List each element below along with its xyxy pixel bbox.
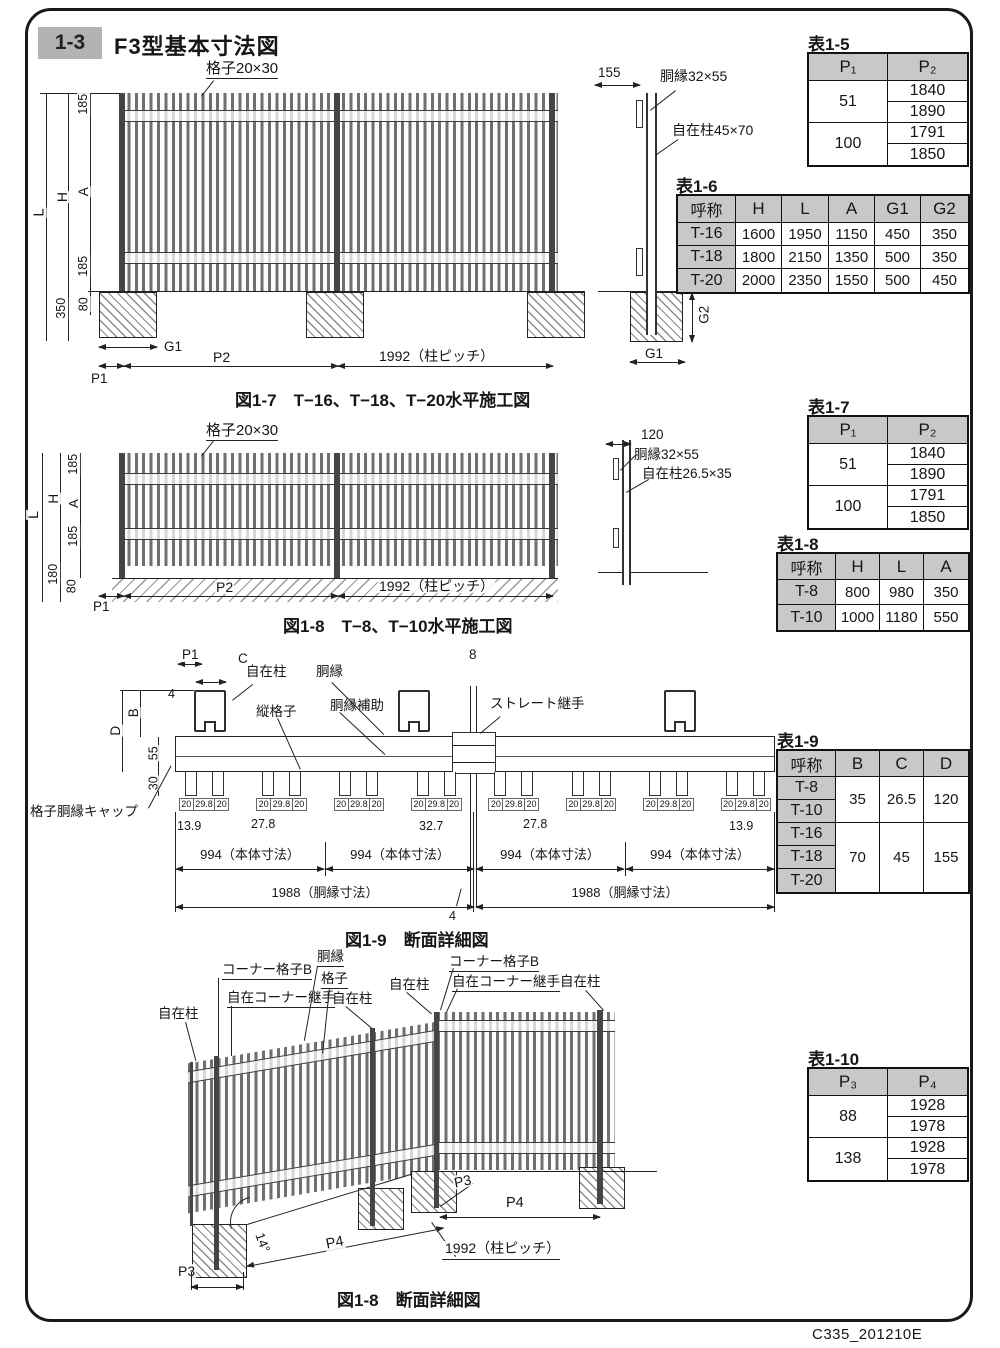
fig18-side-dim-120: 120 bbox=[640, 428, 665, 442]
table-1-7-cell: 1850 bbox=[888, 507, 967, 528]
fig18-dim-180: 180 bbox=[47, 563, 60, 586]
fig19-post-channel-right bbox=[664, 690, 696, 732]
fig17-side-dim-line-G1 bbox=[630, 362, 685, 363]
table-1-8-header: L bbox=[880, 554, 924, 580]
fig18-dim-A: A bbox=[67, 498, 80, 509]
fig17-dim-185-bottom: 185 bbox=[77, 255, 90, 278]
fig19-rail-dim-line bbox=[476, 907, 774, 908]
fig19-rail-dim-text: 1988（胴縁寸法） bbox=[272, 885, 379, 900]
fig18b-pitch-underline bbox=[442, 1259, 560, 1260]
fig19-picket bbox=[753, 772, 765, 796]
fig19-body-dim: 994（本体寸法） bbox=[175, 844, 325, 870]
fig18b-dim-P3-right: P3 bbox=[452, 1172, 474, 1190]
table-1-8-header: A bbox=[924, 554, 968, 580]
table-1-8-cell: 1180 bbox=[880, 605, 924, 630]
table-1-10-cell: 1978 bbox=[888, 1117, 967, 1138]
fig19-dim-B: B bbox=[127, 707, 141, 718]
table-1-5-header-p2: P₂ bbox=[888, 54, 967, 81]
fig19-body-dim: 994（本体寸法） bbox=[625, 844, 775, 870]
table-1-9-header: B bbox=[836, 751, 880, 777]
fig19-gap-dim-3: 32.7 bbox=[418, 820, 444, 833]
fig18-side-dim-line-120 bbox=[606, 444, 631, 445]
fig19-picket-dim: 29.8 bbox=[270, 799, 292, 810]
fig17-caption: 図1-7 T−16、T−18、T−20水平施工図 bbox=[235, 386, 530, 411]
fig19-picket bbox=[572, 772, 584, 796]
fig18b-level-ground-line bbox=[457, 1171, 657, 1172]
table-1-9-cell: 120 bbox=[924, 777, 968, 823]
fig19-picket-dim: 20 bbox=[644, 799, 657, 810]
fig19-dim-8: 8 bbox=[468, 648, 478, 662]
fig18b-post-2 bbox=[370, 1028, 375, 1226]
fig19-joint-hardware-line1 bbox=[452, 745, 496, 746]
fig19-grid-label: 縦格子 bbox=[256, 704, 297, 720]
table-1-6-cell: 2000 bbox=[736, 269, 782, 292]
fig17-dim-line-G1 bbox=[99, 347, 157, 348]
fig19-picket-pair bbox=[262, 772, 301, 796]
fig19-picket-group: 20 29.8 20 bbox=[721, 772, 771, 811]
fig17-dim-line-A bbox=[90, 93, 91, 315]
fig17-dim-pitch: 1992（柱ピッチ） bbox=[378, 349, 495, 363]
table-1-6-header: 呼称 bbox=[678, 196, 736, 223]
table-1-9-cell: 155 bbox=[924, 823, 968, 892]
fig18b-level-rail-top bbox=[437, 1020, 615, 1032]
table-1-6-cell: 2350 bbox=[782, 269, 829, 292]
fig19-picket-dim: 29.8 bbox=[657, 799, 679, 810]
fig17-side-post bbox=[646, 93, 657, 335]
table-1-5-cell: 1791 bbox=[888, 123, 967, 144]
table-1-9-cell: 45 bbox=[880, 823, 924, 892]
fig17-side-rail-label: 胴縁32×55 bbox=[660, 68, 727, 84]
table-1-6-cell: T-18 bbox=[678, 246, 736, 269]
fig18b-post-label-1: 自在柱 bbox=[158, 1006, 199, 1022]
fig17-footing-right bbox=[527, 292, 585, 338]
table-1-6-cell: 1600 bbox=[736, 223, 782, 246]
fig18b-corner-joint-leader-1 bbox=[231, 1006, 232, 1056]
fig17-dim-80: 80 bbox=[78, 296, 91, 312]
fig18-post-right bbox=[549, 453, 555, 598]
fig18b-post-label-4: 自在柱 bbox=[560, 974, 601, 990]
fig18b-dim-line-P4-right bbox=[440, 1217, 600, 1218]
fig19-picket-pair bbox=[417, 772, 456, 796]
fig19-picket bbox=[649, 772, 661, 796]
fig19-body-dim-line bbox=[626, 869, 774, 870]
table-1-10-cell: 138 bbox=[809, 1138, 888, 1180]
fig19-picket-dims: 20 29.8 20 bbox=[566, 798, 617, 811]
fig19-picket-dim: 20 bbox=[180, 799, 193, 810]
fig19-picket-dim: 20 bbox=[412, 799, 425, 810]
table-1-6-header: G1 bbox=[875, 196, 921, 223]
table-1-8-cell: 550 bbox=[924, 605, 968, 630]
fig19-gap-dim-5: 13.9 bbox=[728, 820, 754, 833]
table-1-6-header: G2 bbox=[921, 196, 968, 223]
fig19-picket-dims: 20 29.8 20 bbox=[411, 798, 462, 811]
page-title: F3型基本寸法図 bbox=[114, 29, 280, 61]
fig19-body-dim-line bbox=[326, 869, 474, 870]
fig18b-corner-grid-label-2: コーナー格子B bbox=[449, 954, 539, 972]
fig19-picket-pair bbox=[572, 772, 611, 796]
table-1-6-cell: 1350 bbox=[829, 246, 875, 269]
table-1-6-header: H bbox=[736, 196, 782, 223]
fig19-picket bbox=[726, 772, 738, 796]
fig19-rail-dim: 1988（胴縁寸法） bbox=[175, 882, 475, 908]
fig19-ext-top bbox=[120, 690, 194, 691]
fig19-rail-right-end bbox=[774, 736, 775, 772]
fig18-dim-P2: P2 bbox=[215, 580, 234, 594]
fig18-side-rail-top bbox=[613, 458, 619, 480]
table-1-9: 呼称 B C D T-8 T-10 T-16 T-18 T-20 35 26.5… bbox=[776, 749, 970, 894]
fig18-caption: 図1-8 T−8、T−10水平施工図 bbox=[283, 612, 513, 637]
fig18b-footing-2 bbox=[358, 1188, 404, 1230]
fig18b-corner-joint-label-1: 自在コーナー継手 bbox=[227, 990, 335, 1008]
table-1-8: 呼称 H L A T-8 800 980 350 T-10 1000 1180 … bbox=[776, 552, 970, 632]
table-1-7-header-p2: P₂ bbox=[888, 417, 967, 444]
table-1-5-cell: 1890 bbox=[888, 102, 967, 123]
table-1-6-header: A bbox=[829, 196, 875, 223]
table-1-7-cell: 1890 bbox=[888, 465, 967, 486]
table-1-6-cell: T-20 bbox=[678, 269, 736, 292]
fig19-picket-group: 20 29.8 20 bbox=[334, 772, 384, 811]
fig19-dim-D: D bbox=[109, 725, 123, 737]
fig19-joint-label: ストレート継手 bbox=[490, 696, 585, 712]
fig17-side-post-label: 自在柱45×70 bbox=[672, 122, 753, 138]
fig18-dim-P1: P1 bbox=[92, 600, 111, 614]
fig17-side-dim-line-155 bbox=[595, 85, 640, 86]
fig19-picket-dim: 29.8 bbox=[735, 799, 757, 810]
fig18-dim-H: H bbox=[47, 493, 61, 505]
table-1-10-cell: 1928 bbox=[888, 1138, 967, 1159]
fig19-picket-dims: 20 29.8 20 bbox=[334, 798, 385, 811]
fig19-body-dim-text: 994（本体寸法） bbox=[350, 847, 450, 862]
fig19-picket-dim: 20 bbox=[722, 799, 735, 810]
fig19-picket-dim: 20 bbox=[335, 799, 348, 810]
fig17-grid-label: 格子20×30 bbox=[206, 60, 278, 79]
fig19-picket bbox=[444, 772, 456, 796]
fig17-dim-G1: G1 bbox=[163, 340, 183, 354]
table-1-6-cell: 1550 bbox=[829, 269, 875, 292]
fig19-picket bbox=[185, 772, 197, 796]
fig19-dim-line-P1 bbox=[178, 664, 202, 665]
fig19-picket-row: 20 29.8 20 20 29.8 20 bbox=[179, 772, 771, 811]
fig18-side-ground-line bbox=[598, 572, 708, 573]
fig19-body-dim: 994（本体寸法） bbox=[325, 844, 475, 870]
fig17-dim-185-top: 185 bbox=[77, 93, 90, 116]
fig19-body-dim-line bbox=[176, 869, 324, 870]
table-1-6: 呼称 H L A G1 G2 T-16 1600 1950 1150 450 3… bbox=[676, 194, 970, 294]
fig19-picket-dims: 20 29.8 20 bbox=[721, 798, 772, 811]
fig19-gap-dim-2: 27.8 bbox=[250, 818, 276, 831]
fig18b-dim-P3-left: P3 bbox=[177, 1264, 196, 1278]
fig19-gap-dim-1: 13.9 bbox=[176, 820, 202, 833]
table-1-9-cell: 26.5 bbox=[880, 777, 924, 823]
fig19-picket-dim: 20 bbox=[369, 799, 383, 810]
table-1-6-cell: 1800 bbox=[736, 246, 782, 269]
fig19-picket-dim: 29.8 bbox=[348, 799, 370, 810]
fig18-dim-pitch: 1992（柱ピッチ） bbox=[378, 579, 495, 593]
fig18b-post-4 bbox=[597, 1010, 603, 1204]
fig19-body-dim-text: 994（本体寸法） bbox=[200, 847, 300, 862]
table-1-9-header: C bbox=[880, 751, 924, 777]
fig19-picket-dim: 20 bbox=[292, 799, 306, 810]
table-1-8-cell: T-10 bbox=[778, 605, 836, 630]
fig18-dim-185-bottom: 185 bbox=[67, 525, 80, 548]
table-1-6-cell: 350 bbox=[921, 223, 968, 246]
fig18-post-left bbox=[119, 453, 125, 598]
table-1-7-cell: 1840 bbox=[888, 444, 967, 465]
table-1-6-cell: 450 bbox=[921, 269, 968, 292]
fig19-picket-dims: 20 29.8 20 bbox=[643, 798, 694, 811]
fig19-rail-left-end bbox=[175, 736, 176, 772]
fig17-dim-A: A bbox=[77, 186, 91, 197]
fig18-side-rail-bottom bbox=[613, 528, 619, 548]
fig19-cap-label: 格子胴縁キャップ bbox=[30, 804, 138, 820]
fig18-dim-line-P1 bbox=[99, 596, 124, 597]
fig19-picket-pair bbox=[339, 772, 378, 796]
fig19-rail-label: 胴縁 bbox=[316, 664, 343, 680]
fig18-dim-80: 80 bbox=[66, 578, 79, 594]
drawing-sheet: 1-3 F3型基本寸法図 格子20×30 L H A 185 185 350 8… bbox=[0, 0, 1000, 1348]
fig19-rail-dim: 1988（胴縁寸法） bbox=[475, 882, 775, 908]
fig17-side-dim-line-G2 bbox=[692, 293, 693, 342]
fig18-post-middle bbox=[334, 453, 340, 598]
table-1-9-name: T-20 bbox=[778, 869, 836, 892]
fig19-picket bbox=[417, 772, 429, 796]
fig17-dim-H: H bbox=[55, 191, 69, 203]
table-1-5-cell: 1850 bbox=[888, 144, 967, 165]
table-1-10-cell: 88 bbox=[809, 1096, 888, 1138]
fig18b-dim-pitch: 1992（柱ピッチ） bbox=[444, 1241, 561, 1255]
fig18b-level-panel bbox=[437, 1012, 615, 1170]
fig19-picket-dims: 20 29.8 20 bbox=[179, 798, 230, 811]
table-1-6-cell: 1950 bbox=[782, 223, 829, 246]
table-1-8-cell: 1000 bbox=[836, 605, 880, 630]
fig19-body-dim-row: 994（本体寸法） 994（本体寸法） 994（本体寸法） 994（本体寸法） bbox=[175, 844, 775, 870]
fig18b-grid-label: 格子 bbox=[321, 971, 348, 989]
fig19-rail-sub-label: 胴縁補助 bbox=[330, 698, 384, 714]
table-1-5-cell: 100 bbox=[809, 123, 888, 165]
fig19-picket bbox=[289, 772, 301, 796]
fig19-joint-hardware bbox=[452, 732, 496, 774]
fig18b-rail-label: 胴縁 bbox=[317, 949, 344, 967]
fig18-dim-line-pitch bbox=[338, 596, 553, 597]
fig19-caption: 図1-9 断面詳細図 bbox=[345, 926, 489, 951]
fig19-picket-group: 20 29.8 20 bbox=[489, 772, 539, 811]
fig19-picket-dim: 20 bbox=[601, 799, 615, 810]
fig18-side-rail-label: 胴縁32×55 bbox=[634, 447, 699, 463]
table-1-6-cell: 350 bbox=[921, 246, 968, 269]
fig19-picket bbox=[521, 772, 533, 796]
table-1-9-cell: 70 bbox=[836, 823, 880, 892]
fig17-dim-P1: P1 bbox=[90, 372, 109, 386]
fig18b-corner-grid-leader-1 bbox=[218, 978, 219, 1056]
fig17-side-dim-G2: G2 bbox=[697, 305, 711, 325]
fig19-picket-group: 20 29.8 20 bbox=[256, 772, 306, 811]
table-1-10: P₃ P₄ 88 1928 1978 138 1928 1978 bbox=[807, 1067, 969, 1182]
table-1-8-header: 呼称 bbox=[778, 554, 836, 580]
fig18b-post-label-3: 自在柱 bbox=[389, 977, 430, 993]
table-1-9-cell: 35 bbox=[836, 777, 880, 823]
fig19-joint-hardware-line2 bbox=[452, 762, 496, 763]
fig19-picket-pair bbox=[649, 772, 688, 796]
table-1-6-cell: 450 bbox=[875, 223, 921, 246]
table-1-5-header-p1: P₁ bbox=[809, 54, 888, 81]
table-1-8-cell: T-8 bbox=[778, 580, 836, 605]
fig19-picket-pair bbox=[494, 772, 533, 796]
table-1-9-header: 呼称 bbox=[778, 751, 836, 777]
fig19-picket-dim: 20 bbox=[489, 799, 502, 810]
table-1-8-header: H bbox=[836, 554, 880, 580]
fig17-side-rail-top bbox=[636, 100, 643, 128]
fig19-picket-dim: 20 bbox=[214, 799, 228, 810]
table-1-6-cell: 500 bbox=[875, 269, 921, 292]
fig18b-post-1 bbox=[214, 1056, 219, 1270]
table-1-9-name: T-8 bbox=[778, 777, 836, 800]
fig19-picket-dim: 20 bbox=[679, 799, 693, 810]
fig19-picket bbox=[494, 772, 506, 796]
fig19-picket-group: 20 29.8 20 bbox=[179, 772, 229, 811]
fig18b-level-rail-bottom bbox=[437, 1142, 615, 1154]
table-1-8-cell: 800 bbox=[836, 580, 880, 605]
table-1-9-name: T-18 bbox=[778, 846, 836, 869]
fig19-picket-dim: 29.8 bbox=[425, 799, 447, 810]
table-1-7: P₁ P₂ 51 1840 1890 100 1791 1850 bbox=[807, 415, 969, 530]
table-1-6-cell: 2150 bbox=[782, 246, 829, 269]
fig18-grid-label: 格子20×30 bbox=[206, 422, 278, 441]
fig17-dim-P2: P2 bbox=[212, 350, 231, 364]
fig19-picket-dim: 20 bbox=[756, 799, 770, 810]
fig19-picket-dim: 20 bbox=[524, 799, 538, 810]
table-1-9-header: D bbox=[924, 751, 968, 777]
fig19-picket-dim: 20 bbox=[447, 799, 461, 810]
fig19-picket bbox=[262, 772, 274, 796]
fig18b-end-post bbox=[190, 1062, 193, 1226]
fig19-dim-P1: P1 bbox=[181, 648, 200, 662]
fig17-footing-left bbox=[99, 292, 157, 338]
fig19-picket bbox=[599, 772, 611, 796]
fig17-dim-line-P1 bbox=[99, 366, 124, 367]
fig18b-dim-P4-slope: P4 bbox=[324, 1234, 346, 1252]
fig19-picket-group: 20 29.8 20 bbox=[411, 772, 461, 811]
fig19-body-dim-text: 994（本体寸法） bbox=[650, 847, 750, 862]
fig18b-caption: 図1-8 断面詳細図 bbox=[337, 1286, 481, 1311]
fig17-dim-L: L bbox=[32, 207, 47, 217]
fig18-side-post-label: 自在柱26.5×35 bbox=[642, 466, 732, 482]
table-1-8-cell: 350 bbox=[924, 580, 968, 605]
fig19-dim-line-C bbox=[196, 682, 226, 683]
table-1-6-cell: T-16 bbox=[678, 223, 736, 246]
document-code: C335_201210E bbox=[812, 1326, 922, 1343]
table-1-5-cell: 51 bbox=[809, 81, 888, 123]
table-1-7-cell: 1791 bbox=[888, 486, 967, 507]
fig19-body-dim: 994（本体寸法） bbox=[475, 844, 625, 870]
fig19-body-dim-line bbox=[476, 869, 624, 870]
fig19-picket bbox=[676, 772, 688, 796]
table-1-7-cell: 51 bbox=[809, 444, 888, 486]
fig19-picket-dims: 20 29.8 20 bbox=[488, 798, 539, 811]
fig19-post-channel-middle bbox=[398, 690, 430, 732]
fig17-footing-middle bbox=[306, 292, 364, 338]
fig17-side-rail-bottom bbox=[636, 248, 643, 276]
table-1-6-cell: 500 bbox=[875, 246, 921, 269]
fig19-rail-dim-row: 1988（胴縁寸法） 1988（胴縁寸法） bbox=[175, 882, 775, 908]
fig17-side-dim-155: 155 bbox=[597, 66, 622, 80]
fig19-picket-group: 20 29.8 20 bbox=[644, 772, 694, 811]
table-1-10-cell: 1928 bbox=[888, 1096, 967, 1117]
table-1-9-name: T-16 bbox=[778, 823, 836, 846]
fig19-picket-dim: 29.8 bbox=[193, 799, 215, 810]
table-1-10-cell: 1978 bbox=[888, 1159, 967, 1180]
fig18-dim-line-P2 bbox=[124, 596, 338, 597]
fig19-picket bbox=[339, 772, 351, 796]
fig19-dim-55: 55 bbox=[148, 745, 161, 761]
fig19-dim-4-bottom: 4 bbox=[448, 910, 457, 923]
fig19-picket-dim: 29.8 bbox=[502, 799, 524, 810]
table-1-5: P₁ P₂ 51 1840 1890 100 1791 1850 bbox=[807, 52, 969, 167]
fig19-picket-dim: 20 bbox=[257, 799, 270, 810]
table-1-8-cell: 980 bbox=[880, 580, 924, 605]
fig19-body-dim-text: 994（本体寸法） bbox=[500, 847, 600, 862]
fig18b-post-3 bbox=[434, 1012, 439, 1208]
fig17-side-dim-G1: G1 bbox=[644, 347, 664, 361]
fig19-gap-dim-4: 27.8 bbox=[522, 818, 548, 831]
table-1-7-header-p1: P₁ bbox=[809, 417, 888, 444]
fig19-picket-group: 20 29.8 20 bbox=[566, 772, 616, 811]
fig18b-dim-P4-right: P4 bbox=[505, 1196, 525, 1211]
fig19-post-label: 自在柱 bbox=[246, 664, 287, 680]
table-1-7-cell: 100 bbox=[809, 486, 888, 528]
fig18-dim-line-L bbox=[42, 453, 43, 602]
fig18b-dim-line-P3-left bbox=[191, 1287, 243, 1288]
fig19-picket bbox=[212, 772, 224, 796]
fig18b-corner-joint-label-2: 自在コーナー継手 bbox=[452, 974, 560, 992]
table-1-5-cell: 1840 bbox=[888, 81, 967, 102]
fig18b-corner-grid-label-1: コーナー格子B bbox=[222, 962, 312, 980]
fig19-post-channel-left bbox=[194, 690, 226, 732]
fig19-picket-pair bbox=[726, 772, 765, 796]
section-number-badge: 1-3 bbox=[38, 27, 102, 59]
fig17-dim-line-P2 bbox=[124, 366, 338, 367]
table-1-10-header-p3: P₃ bbox=[809, 1069, 888, 1096]
table-1-9-name: T-10 bbox=[778, 800, 836, 823]
fig19-rail-dim-line bbox=[176, 907, 474, 908]
table-1-6-cell: 1150 bbox=[829, 223, 875, 246]
fig19-picket-dim: 29.8 bbox=[580, 799, 602, 810]
table-1-10-header-p4: P₄ bbox=[888, 1069, 967, 1096]
fig19-picket-dim: 20 bbox=[567, 799, 580, 810]
fig19-rail-dim-text: 1988（胴縁寸法） bbox=[572, 885, 679, 900]
fig19-picket-dims: 20 29.8 20 bbox=[256, 798, 307, 811]
fig18-dim-L: L bbox=[26, 510, 40, 520]
fig17-dim-350: 350 bbox=[55, 297, 68, 320]
fig18b-post-label-2: 自在柱 bbox=[332, 991, 373, 1007]
fig19-picket-pair bbox=[185, 772, 224, 796]
fig18-dim-185-top: 185 bbox=[67, 453, 80, 476]
fig17-dim-line-pitch bbox=[338, 366, 553, 367]
fig19-picket bbox=[366, 772, 378, 796]
table-1-6-header: L bbox=[782, 196, 829, 223]
